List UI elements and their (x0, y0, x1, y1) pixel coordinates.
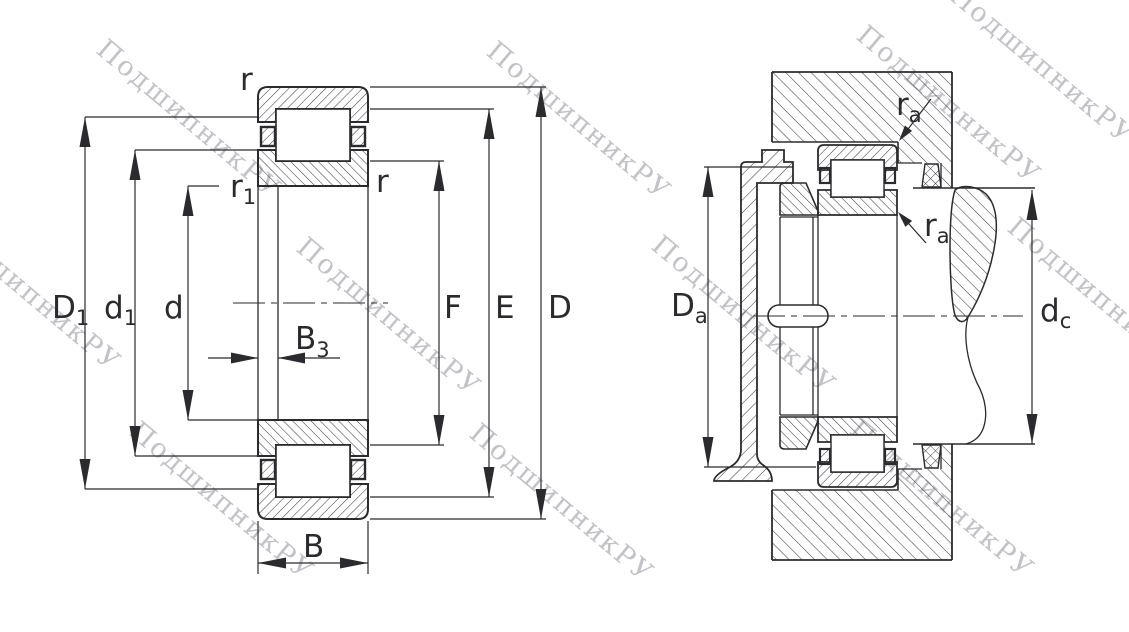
roller-pocket-top (276, 109, 350, 161)
shaft-break-tail (966, 317, 986, 444)
cage-bar-top-right (351, 127, 365, 146)
angle-ring-top (780, 183, 818, 215)
watermark-text: ПодшипникРУ (481, 36, 677, 208)
cage-bar-bottom-left (261, 460, 275, 479)
label-d: d (164, 290, 184, 326)
label-r-side: r (376, 164, 389, 200)
leader-ra-lower (898, 212, 926, 243)
left-view-bearing-section (233, 87, 388, 519)
label-D1: D1 (52, 290, 89, 330)
shaft (768, 187, 1035, 444)
watermark-text: ПодшипникРУ (464, 418, 660, 590)
abutment-spacer-top (922, 164, 941, 187)
drawing-canvas: ПодшипникРУ ПодшипникРУ ПодшипникРУ Подш… (0, 0, 1129, 632)
label-d1: d1 (104, 290, 137, 330)
roller-pocket-bottom (276, 445, 350, 497)
angle-ring-bottom (780, 417, 818, 449)
label-D: D (548, 290, 572, 326)
label-B3: B3 (295, 321, 330, 362)
label-F: F (444, 290, 462, 326)
cage-bar-bottom-right (351, 460, 365, 479)
shaft-break-teardrop (950, 187, 996, 322)
label-dc: dc (1040, 293, 1071, 333)
label-E: E (495, 290, 515, 326)
abutment-spacer-bottom (922, 445, 941, 468)
watermark-text: ПодшипникРУ (1002, 212, 1129, 384)
cage-bar-top-left (261, 127, 275, 146)
bearing-drawing-page: ПодшипникРУ ПодшипникРУ ПодшипникРУ Подш… (0, 0, 1129, 632)
label-ra-lower: ra (924, 208, 950, 248)
label-B: B (303, 529, 324, 565)
mounted-bearing-bottom (818, 417, 897, 487)
mounted-bearing-top (818, 145, 897, 215)
label-r-top: r (240, 62, 253, 98)
